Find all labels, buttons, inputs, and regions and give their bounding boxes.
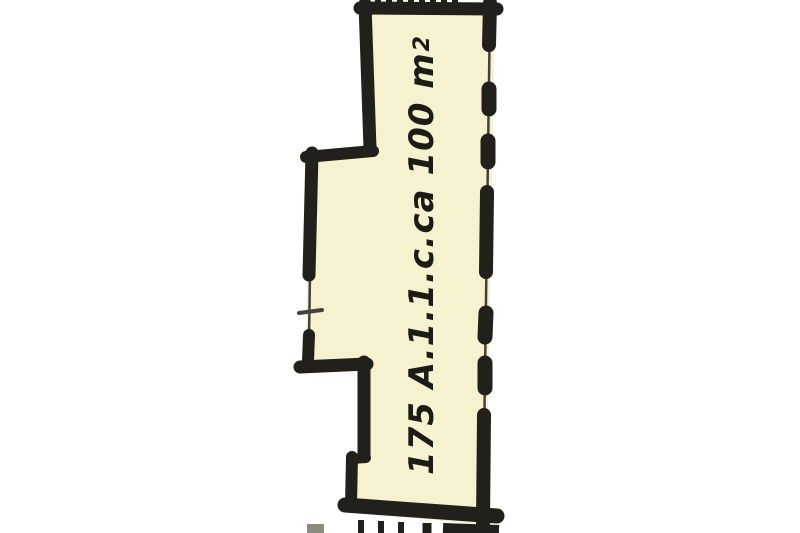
room-interior — [306, 3, 495, 525]
step-wall-middle — [300, 364, 367, 367]
floorplan-drawing — [0, 0, 800, 533]
door-opening-line — [309, 274, 310, 337]
right-wall-top — [489, 3, 490, 45]
left-wall-lower — [308, 335, 309, 361]
jog-wall-vertical — [351, 457, 352, 505]
right-wall-middle — [486, 192, 487, 272]
right-wall-bottom — [483, 415, 484, 523]
floorplan-sketch: 175 A.1.1.c. ca 100 m2 — [0, 0, 800, 533]
right-wall-pillar-3 — [485, 313, 486, 337]
top-wall — [360, 8, 497, 9]
bottom-edge-bar — [443, 528, 499, 530]
upper-left-wall — [365, 4, 370, 148]
left-wall-upper — [309, 153, 312, 275]
